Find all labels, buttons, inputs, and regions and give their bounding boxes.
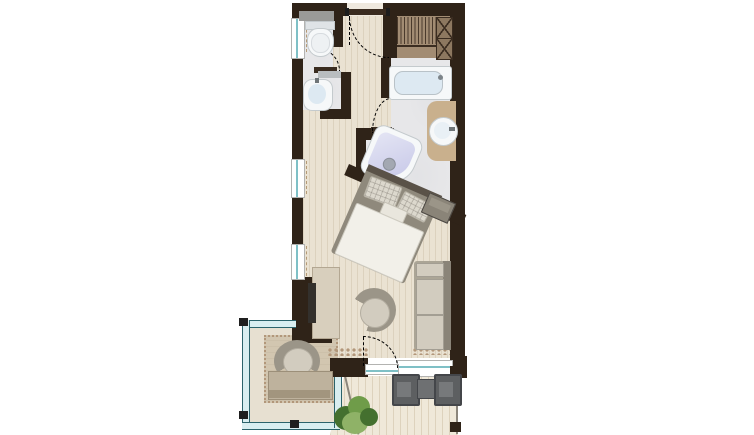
wall-shelf (299, 11, 334, 21)
curtain-mark-3 (306, 246, 309, 276)
outdoor-chair-left-seat (397, 382, 411, 397)
corner-side-table-top (428, 197, 450, 213)
desk-sideboard (312, 267, 340, 339)
terrace-door-open-line (363, 337, 366, 366)
sofa-cushion-2 (416, 315, 444, 350)
entry-door-open-line (349, 17, 352, 45)
niche-faucet (315, 78, 319, 83)
balustrade-post-3 (290, 420, 299, 428)
wall-left-seg2 (292, 57, 303, 159)
pebble-strip-left (327, 347, 368, 356)
wall-left-seg3 (292, 196, 303, 244)
vanity-faucet (449, 127, 455, 131)
lounge-sofa (414, 261, 451, 350)
sofa-headrest (416, 263, 444, 277)
outdoor-table (417, 379, 435, 399)
tv (308, 283, 316, 323)
niche-washbasin-bowl (308, 84, 326, 104)
swivel-armchair (352, 288, 396, 332)
balustrade-top (243, 320, 296, 328)
entry-door-hinge-cap-right (386, 8, 390, 16)
terrace-rail-post-bottom (450, 422, 461, 432)
outdoor-chair-right-seat (439, 382, 453, 397)
sofa-cushion-1 (416, 279, 444, 315)
niche-shelf (318, 71, 341, 78)
toilet-seat (311, 33, 330, 53)
shelf-cabinet-x-bottom (436, 38, 453, 60)
shelf-cabinet-x-top (436, 17, 453, 39)
loggia-bench (268, 371, 333, 400)
potted-plant (334, 396, 382, 435)
balustrade-post-2 (239, 411, 248, 419)
outdoor-chair-left (392, 374, 420, 406)
outdoor-chair-right (434, 374, 462, 406)
swivel-armchair-seat (360, 298, 390, 328)
window-left-2 (291, 159, 305, 198)
wardrobe-rail (397, 45, 437, 47)
bathtub-faucet (438, 75, 443, 80)
plant-leaf-4 (360, 408, 378, 426)
curtain-mark-2 (306, 161, 309, 194)
floor-plan (0, 0, 754, 435)
entry-door-leaf (348, 9, 387, 15)
window-left-3 (291, 244, 305, 280)
loggia-bench-front (269, 390, 330, 398)
bathtub-basin (394, 71, 443, 95)
window-left-1 (291, 18, 305, 59)
sofa-back (443, 261, 451, 350)
entry-door-hinge-cap-left (345, 8, 349, 16)
wardrobe-hangers (397, 17, 437, 44)
balustrade-post-1 (239, 318, 248, 326)
